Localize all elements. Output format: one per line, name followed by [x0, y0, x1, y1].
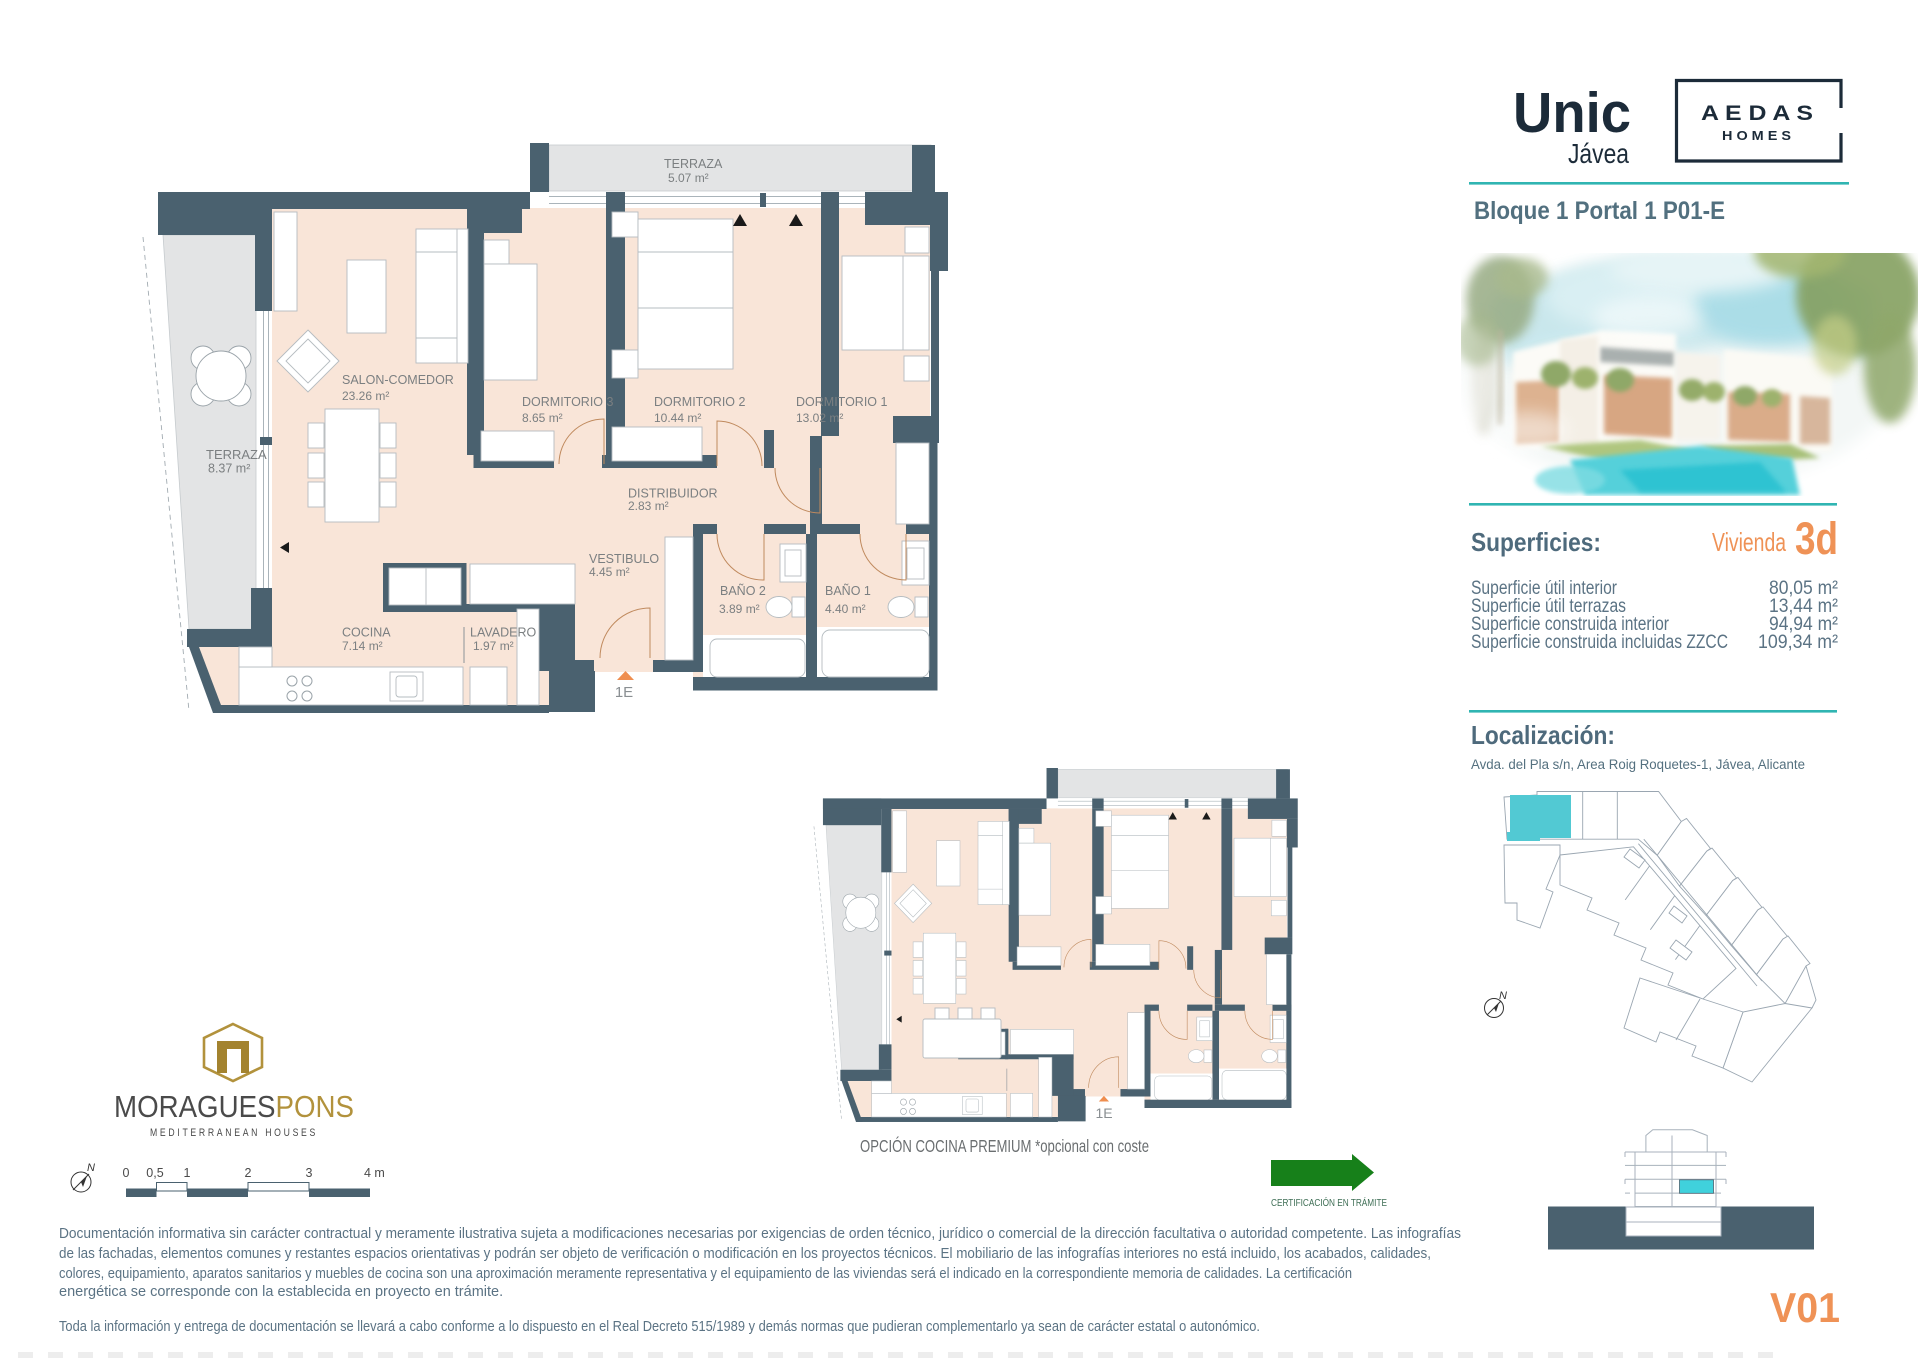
svg-text:N: N: [1499, 990, 1507, 1002]
svg-text:energética se corresponde con: energética se corresponde con la estable…: [59, 1284, 503, 1300]
svg-text:5.07 m²: 5.07 m²: [668, 171, 709, 185]
svg-text:2.83 m²: 2.83 m²: [628, 499, 669, 513]
svg-text:1E: 1E: [1095, 1105, 1112, 1121]
svg-text:BAÑO 1: BAÑO 1: [825, 584, 871, 598]
svg-text:1.97 m²: 1.97 m²: [473, 639, 514, 653]
svg-text:Localización:: Localización:: [1471, 720, 1615, 750]
svg-text:2: 2: [245, 1166, 252, 1180]
svg-text:SALON-COMEDOR: SALON-COMEDOR: [342, 373, 454, 387]
svg-text:OPCIÓN COCINA PREMIUM *opciona: OPCIÓN COCINA PREMIUM *opcional con cost…: [860, 1135, 1149, 1156]
svg-text:Superficie construida incluida: Superficie construida incluidas ZZCC: [1471, 632, 1728, 653]
svg-text:3.89 m²: 3.89 m²: [719, 602, 760, 616]
svg-text:TERRAZA: TERRAZA: [664, 157, 723, 171]
svg-text:DORMITORIO 3: DORMITORIO 3: [522, 395, 613, 409]
svg-text:10.44 m²: 10.44 m²: [654, 411, 701, 425]
svg-text:LAVADERO: LAVADERO: [470, 626, 537, 640]
svg-text:BAÑO 2: BAÑO 2: [720, 584, 766, 598]
svg-text:4.45 m²: 4.45 m²: [589, 565, 630, 579]
svg-text:de las fachadas, elementos com: de las fachadas, elementos comunes y res…: [59, 1246, 1431, 1262]
svg-text:colores, equipamiento, aparato: colores, equipamiento, aparatos sanitari…: [59, 1266, 1352, 1282]
svg-text:0,5: 0,5: [146, 1166, 163, 1180]
svg-text:Vivienda: Vivienda: [1712, 527, 1786, 557]
svg-text:DORMITORIO 1: DORMITORIO 1: [796, 395, 887, 409]
svg-text:A E D A S: A E D A S: [1701, 102, 1813, 125]
svg-text:VESTIBULO: VESTIBULO: [589, 552, 659, 566]
svg-text:1: 1: [184, 1166, 191, 1180]
svg-text:DORMITORIO 2: DORMITORIO 2: [654, 395, 745, 409]
svg-text:COCINA: COCINA: [342, 626, 391, 640]
svg-text:3: 3: [306, 1166, 313, 1180]
svg-text:0: 0: [123, 1166, 130, 1180]
svg-text:Jávea: Jávea: [1568, 138, 1629, 169]
svg-text:4.40 m²: 4.40 m²: [825, 602, 866, 616]
svg-text:Superficies:: Superficies:: [1471, 527, 1601, 557]
svg-text:23.26 m²: 23.26 m²: [342, 389, 389, 403]
svg-text:V01: V01: [1770, 1284, 1840, 1331]
svg-text:4 m: 4 m: [364, 1166, 385, 1180]
svg-text:8.65 m²: 8.65 m²: [522, 411, 563, 425]
svg-text:TERRAZA: TERRAZA: [206, 447, 267, 462]
svg-text:13.02 m²: 13.02 m²: [796, 411, 843, 425]
svg-text:H O M E S: H O M E S: [1722, 129, 1791, 143]
svg-text:3d: 3d: [1795, 513, 1838, 564]
svg-text:Documentación informativa sin: Documentación informativa sin carácter c…: [59, 1226, 1461, 1242]
svg-text:Avda. del Pla s/n, Area Roig R: Avda. del Pla s/n, Area Roig Roquetes-1,…: [1471, 757, 1805, 772]
svg-text:Toda la información y entrega: Toda la información y entrega de documen…: [59, 1319, 1260, 1335]
svg-text:Unic: Unic: [1513, 81, 1631, 145]
svg-text:N: N: [87, 1162, 95, 1174]
svg-text:MORAGUESPONS: MORAGUESPONS: [114, 1089, 354, 1124]
svg-text:CERTIFICACIÓN EN TRÁMITE: CERTIFICACIÓN EN TRÁMITE: [1271, 1196, 1387, 1209]
svg-text:8.37 m²: 8.37 m²: [208, 462, 250, 476]
svg-text:MEDITERRANEAN HOUSES: MEDITERRANEAN HOUSES: [150, 1127, 318, 1139]
svg-text:109,34 m²: 109,34 m²: [1758, 632, 1838, 653]
svg-text:Bloque 1 Portal 1 P01-E: Bloque 1 Portal 1 P01-E: [1474, 197, 1725, 225]
svg-text:7.14 m²: 7.14 m²: [342, 639, 383, 653]
svg-text:1E: 1E: [615, 684, 633, 701]
